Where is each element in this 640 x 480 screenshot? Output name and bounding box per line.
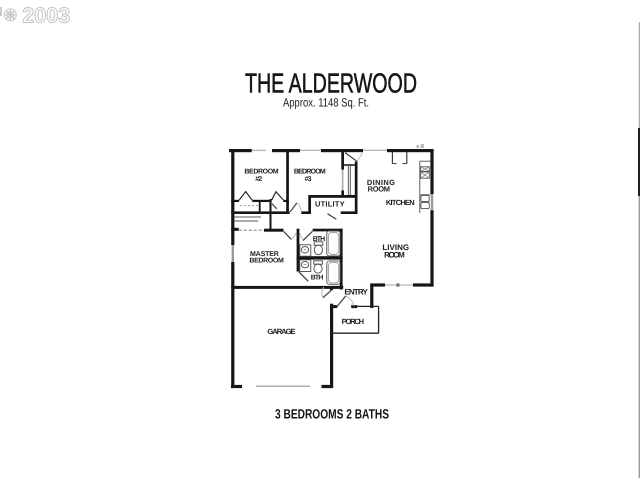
svg-text:ENTRY: ENTRY bbox=[344, 288, 368, 297]
svg-text:ROOM: ROOM bbox=[368, 184, 390, 193]
svg-text:BTH: BTH bbox=[313, 236, 326, 243]
svg-text:KITCHEN: KITCHEN bbox=[386, 198, 415, 207]
svg-text:BTH: BTH bbox=[311, 274, 324, 281]
svg-text:ROOM: ROOM bbox=[384, 251, 405, 260]
svg-text:UTILITY: UTILITY bbox=[315, 199, 345, 208]
svg-text:GARAGE: GARAGE bbox=[267, 327, 295, 336]
svg-text:Approx. 1148 Sq. Ft.: Approx. 1148 Sq. Ft. bbox=[283, 96, 369, 110]
svg-text:BEDROOM: BEDROOM bbox=[244, 169, 278, 176]
svg-text:3 BEDROOMS 2 BATHS: 3 BEDROOMS 2 BATHS bbox=[275, 407, 389, 422]
svg-text:BEDROOM: BEDROOM bbox=[249, 258, 284, 265]
svg-text:#2: #2 bbox=[255, 176, 262, 183]
svg-text:BEDROOM: BEDROOM bbox=[294, 169, 326, 176]
svg-text:2003: 2003 bbox=[22, 3, 70, 27]
svg-text:#3: #3 bbox=[305, 176, 312, 183]
svg-text:PORCH: PORCH bbox=[342, 317, 365, 326]
svg-text:THE ALDERWOOD: THE ALDERWOOD bbox=[245, 68, 417, 99]
